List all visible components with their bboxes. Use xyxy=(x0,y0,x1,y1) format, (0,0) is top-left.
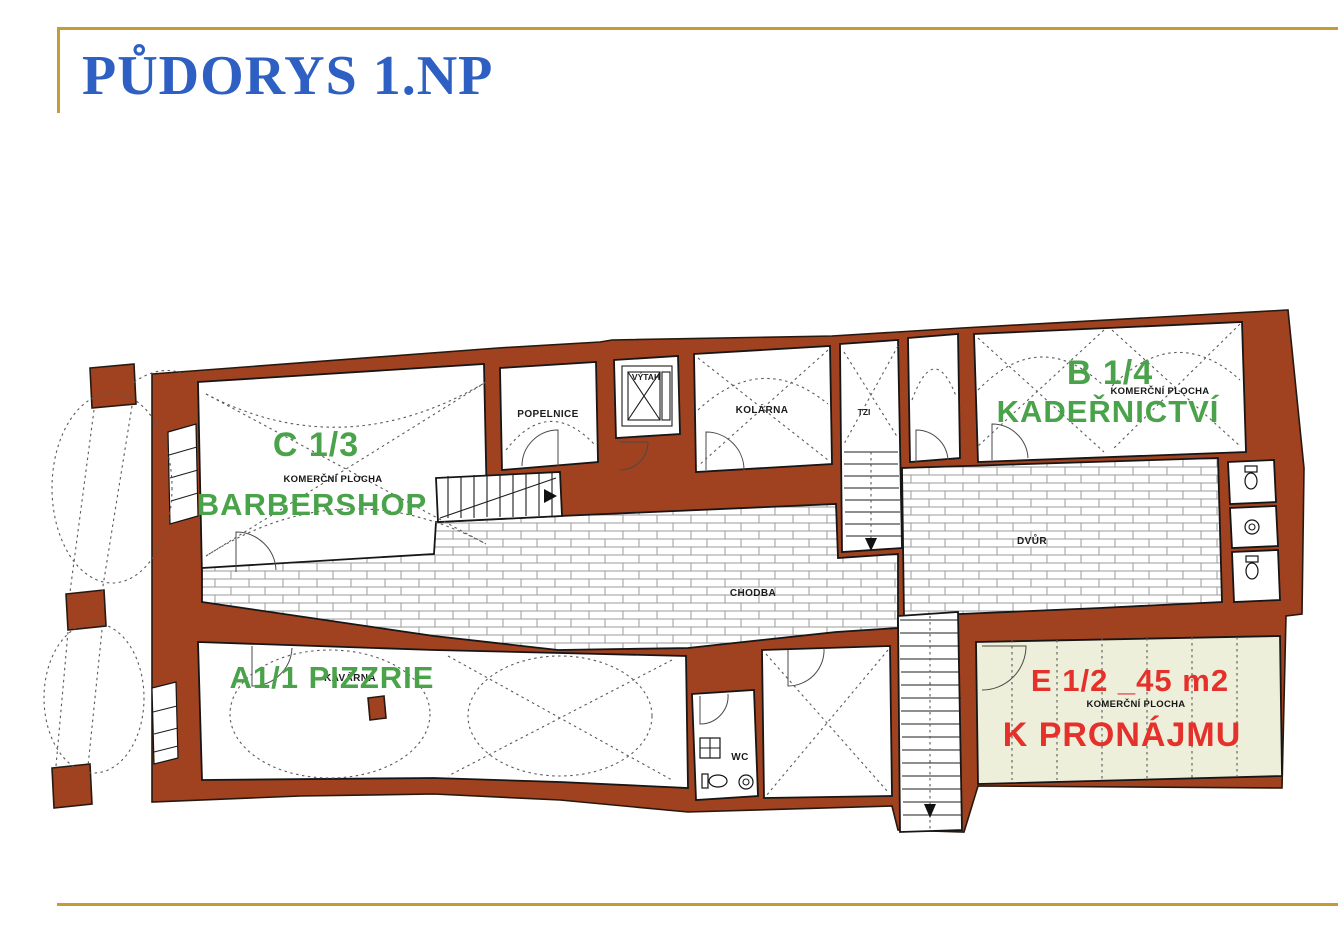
label-wc: WC xyxy=(731,752,748,763)
slide: PŮDORYS 1.NP xyxy=(0,0,1338,926)
stair-landing xyxy=(436,472,562,522)
arcade-pillar xyxy=(90,364,136,408)
unit-c-code: C 1/3 xyxy=(273,426,359,464)
unit-b-type: KOMERČNÍ PLOCHA xyxy=(1111,385,1210,397)
unit-c-type: KOMERČNÍ PLOCHA xyxy=(284,473,383,485)
stairs-basement xyxy=(898,612,962,832)
label-kolarna: KOLÁRNA xyxy=(736,403,789,416)
label-tzi: TZI xyxy=(858,407,871,417)
arcade-pillar xyxy=(52,764,92,808)
label-chodba: CHODBA xyxy=(730,588,776,599)
label-dvur: DVŮR xyxy=(1017,533,1047,547)
unit-a-code: A1/1 PIZZRIE xyxy=(230,660,435,695)
unit-b-name: KADEŘNICTVÍ xyxy=(997,393,1220,429)
unit-e-code: E 1/2 _45 m2 xyxy=(1031,663,1229,698)
pier xyxy=(368,696,386,720)
floor-plan: POPELNICE VÝTAH KOLÁRNA TZI DVŮR CHODBA … xyxy=(0,0,1338,926)
label-vytah: VÝTAH xyxy=(632,371,660,382)
unit-c-name: BARBERSHOP xyxy=(197,487,427,522)
unit-e-name: K PRONÁJMU xyxy=(1003,716,1242,754)
unit-e-type: KOMERČNÍ PLOCHA xyxy=(1087,698,1186,710)
label-popelnice: POPELNICE xyxy=(517,409,578,420)
courtyard-dvur xyxy=(902,458,1222,618)
room-lease-e xyxy=(976,636,1282,784)
